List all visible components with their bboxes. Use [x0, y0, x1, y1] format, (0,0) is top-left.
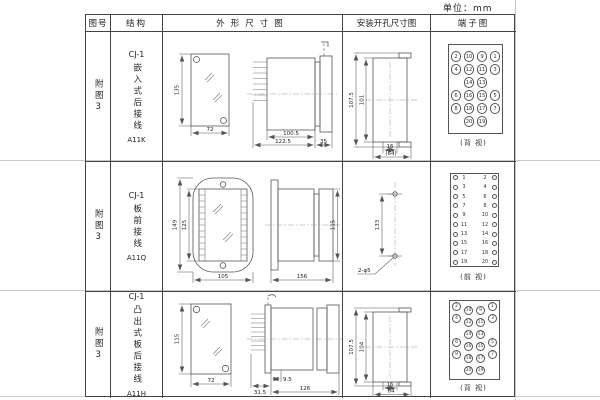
terminal-pin-6: 6	[452, 338, 461, 347]
model-label: CJ-1	[129, 50, 145, 59]
model-code-label: A11H	[127, 390, 146, 398]
dim-front-height: 115	[175, 333, 181, 344]
terminal-pin-9: 9	[476, 306, 485, 315]
structure-row1: CJ-1 嵌入式后接线 A11K	[111, 32, 163, 162]
terminal-pin-3: 3	[490, 64, 501, 75]
terminal-pin-12: 12	[464, 318, 473, 327]
dim-front-width: 72	[207, 127, 214, 133]
fig-no-row1: 附图3	[86, 32, 111, 162]
terminal-pin-3: 3	[488, 314, 497, 323]
terminal-pin-14: 14	[464, 77, 475, 88]
terminal-pin-18: 18	[464, 103, 475, 114]
fig-no-row3: 附图3	[86, 292, 111, 398]
dim-side-d3: 126	[300, 386, 311, 392]
mount-type-label: 嵌入式后接线	[132, 63, 141, 132]
dim-side-h: 115	[331, 219, 337, 230]
terminal-pin-14: 14	[464, 330, 473, 339]
dim-side-d2: 9.5	[283, 377, 292, 383]
terminal-caption-row2: (前 视)	[431, 272, 516, 282]
model-code-label: A11K	[127, 136, 145, 144]
dim-side-d3: 35	[320, 139, 327, 145]
dim-mount-slot: 16	[387, 382, 394, 388]
terminal-pair-row: 1112	[451, 221, 498, 229]
terminal-pin-13: 13	[476, 330, 485, 339]
terminal-caption-row1: (背 视)	[431, 138, 516, 148]
terminal-pin-8: 8	[452, 350, 461, 359]
terminal-pin-2: 2	[451, 51, 462, 62]
terminal-pair-row: 34	[451, 183, 498, 191]
terminal-pin-15: 15	[477, 90, 488, 101]
terminal-pin-10: 10	[464, 51, 475, 62]
header-outline: 外形尺寸图	[163, 15, 343, 32]
terminal-grid-row3: 2109141211314136161558181772019	[449, 300, 500, 380]
terminal-pin-17: 17	[477, 103, 488, 114]
dim-front-h1: 149	[173, 219, 179, 230]
terminal-pin-4: 4	[451, 64, 462, 75]
terminal-pair-row: 1314	[451, 230, 498, 238]
terminal-pin-19: 19	[476, 366, 485, 375]
mounting-drawing-row3: 107.5 104 16 64	[343, 292, 431, 397]
outline-drawing-row3: 115 72 9.5 31.5	[163, 292, 343, 397]
outline-cell-row1: 135 72 100.5 122.5	[163, 32, 343, 162]
dim-front-w: 105	[218, 274, 229, 280]
dim-mount-outer: 107.5	[349, 92, 355, 108]
structure-row2: CJ-1 板前接线 A11Q	[111, 162, 163, 292]
terminal-pin-4: 4	[452, 314, 461, 323]
terminal-caption-row3: (背 视)	[431, 383, 516, 393]
terminal-pin-18: 18	[464, 354, 473, 363]
dim-side-d1: 100.5	[283, 131, 299, 137]
terminal-pin-9: 9	[477, 51, 488, 62]
terminal-pin-12: 12	[464, 64, 475, 75]
terminal-pin-17: 17	[476, 354, 485, 363]
dim-mount-span: (64)	[385, 151, 396, 157]
model-label: CJ-1	[129, 191, 145, 200]
mounting-cell-row2: 133 2-φ5	[343, 162, 431, 292]
dim-front-h2: 125	[182, 219, 188, 230]
terminal-pair-row: 910	[451, 211, 498, 219]
mounting-cell-row3: 107.5 104 16 64	[343, 292, 431, 398]
header-fig-no: 图号	[86, 15, 111, 32]
unit-label: 单位：mm	[443, 1, 493, 14]
terminal-pin-16: 16	[464, 90, 475, 101]
mount-type-label: 板前接线	[132, 204, 141, 250]
terminal-pin-5: 5	[490, 90, 501, 101]
terminal-pin-1: 1	[488, 302, 497, 311]
header-terminal: 端子图	[431, 15, 516, 32]
hole-spec-label: 2-φ5	[358, 268, 371, 274]
mounting-drawing-row2: 133 2-φ5	[343, 162, 431, 292]
dim-mount-inner: 104	[360, 341, 366, 352]
terminal-pair-row: 12	[451, 174, 498, 182]
terminal-grid-row2: 1234567891011121314151617181920	[450, 173, 499, 267]
terminal-pair-row: 1718	[451, 249, 498, 257]
outline-cell-row3: 115 72 9.5 31.5	[163, 292, 343, 398]
terminal-cell-row3: 2109141211314136161558181772019 (背 视)	[431, 292, 516, 398]
terminal-pin-13: 13	[477, 77, 488, 88]
terminal-pin-7: 7	[488, 350, 497, 359]
front-view: 135 72	[175, 54, 230, 136]
outline-drawing-row2: 149 125 105 115 156	[163, 162, 343, 292]
dim-hole-pitch: 133	[375, 219, 381, 230]
front-view: 115 72	[175, 304, 232, 387]
terminal-pin-20: 20	[464, 366, 473, 375]
terminal-grid-row1: 2109141211314136161558181772019	[448, 44, 503, 134]
mounting-cell-row1: 107.5 101 16 (64)	[343, 32, 431, 162]
outline-cell-row2: 149 125 105 115 156	[163, 162, 343, 292]
dim-side-d2: 122.5	[275, 139, 291, 145]
dim-mount-outer: 107.5	[349, 339, 355, 355]
fig-no-row2: 附图3	[86, 162, 111, 292]
dim-front-height: 135	[175, 84, 181, 95]
terminal-pin-10: 10	[464, 306, 473, 315]
dim-mount-slot: 16	[387, 144, 394, 150]
terminal-pin-11: 11	[476, 318, 485, 327]
terminal-pin-16: 16	[464, 342, 473, 351]
spec-table: 图号 结构 外形尺寸图 安装开孔尺寸图 端子图 附图3 CJ-1 嵌入式后接线 …	[85, 14, 515, 397]
terminal-pair-row: 1920	[451, 258, 498, 266]
model-label: CJ-1	[129, 292, 145, 301]
datasheet-page: 单位：mm 图号 结构 外形尺寸图 安装开孔尺寸图 端子图 附图3 CJ-1 嵌…	[0, 0, 600, 400]
terminal-pair-row: 56	[451, 193, 498, 201]
terminal-pair-row: 1516	[451, 239, 498, 247]
structure-row3: CJ-1 凸出式板后接线 A11H	[111, 292, 163, 398]
header-structure: 结构	[111, 15, 163, 32]
front-view: 149 125 105	[173, 178, 254, 283]
mounting-drawing-row1: 107.5 101 16 (64)	[343, 32, 431, 162]
terminal-pin-11: 11	[477, 64, 488, 75]
dim-mount-span: 64	[388, 389, 395, 395]
dim-front-width: 72	[208, 378, 215, 384]
terminal-pin-15: 15	[476, 342, 485, 351]
terminal-pin-7: 7	[490, 103, 501, 114]
terminal-pin-2: 2	[452, 302, 461, 311]
side-view: 9.5 31.5 126	[247, 295, 342, 396]
terminal-pin-5: 5	[488, 338, 497, 347]
dim-side-len: 156	[297, 274, 308, 280]
outline-drawing-row1: 135 72 100.5 122.5	[163, 32, 343, 162]
terminal-pin-6: 6	[451, 90, 462, 101]
terminal-pin-1: 1	[490, 51, 501, 62]
fig-no-text: 附图3	[94, 209, 103, 245]
dim-side-d1: 31.5	[254, 390, 267, 396]
model-code-label: A11Q	[127, 254, 146, 262]
terminal-pin-20: 20	[464, 116, 475, 127]
terminal-cell-row1: 2109141211314136161558181772019 (背 视)	[431, 32, 516, 162]
terminal-pin-8: 8	[451, 103, 462, 114]
terminal-pair-row: 78	[451, 202, 498, 210]
terminal-pin-19: 19	[477, 116, 488, 127]
fig-no-text: 附图3	[94, 79, 103, 115]
terminal-cell-row2: 1234567891011121314151617181920 (前 视)	[431, 162, 516, 292]
fig-no-text: 附图3	[94, 327, 103, 363]
mount-type-label: 凸出式板后接线	[132, 305, 141, 386]
dim-mount-inner: 101	[360, 95, 366, 106]
side-view: 100.5 122.5 35	[247, 42, 339, 148]
side-view: 115 156	[265, 180, 341, 283]
header-mounting: 安装开孔尺寸图	[343, 15, 431, 32]
